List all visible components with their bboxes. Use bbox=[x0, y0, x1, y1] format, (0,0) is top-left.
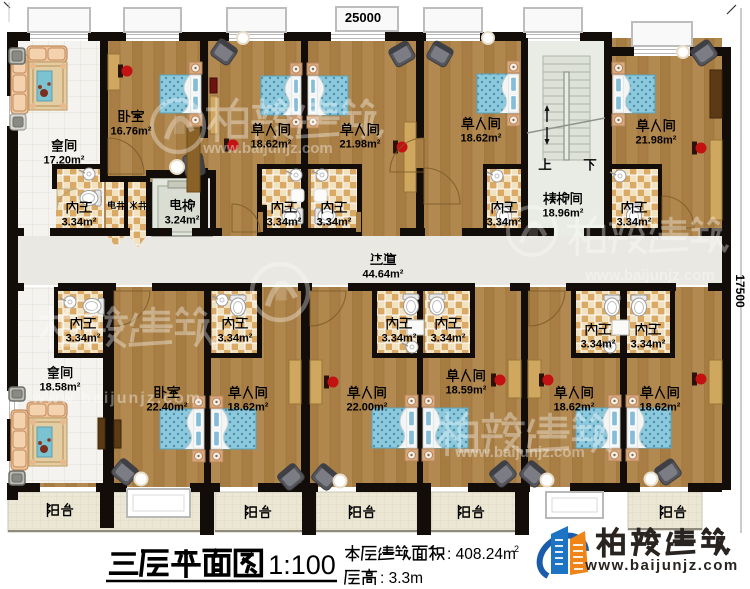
svg-text:18.59m²: 18.59m² bbox=[446, 385, 487, 397]
svg-text:22.00m²: 22.00m² bbox=[347, 402, 388, 414]
svg-text:18.58m²: 18.58m² bbox=[40, 382, 81, 394]
svg-text:www.baijunjz.com: www.baijunjz.com bbox=[584, 557, 738, 574]
svg-text:3.34m²: 3.34m² bbox=[487, 217, 522, 229]
svg-text:18.62m²: 18.62m² bbox=[461, 133, 502, 145]
svg-text:17.20m²: 17.20m² bbox=[44, 155, 85, 167]
svg-text:22.40m²: 22.40m² bbox=[147, 402, 188, 414]
svg-text:44.64m²: 44.64m² bbox=[363, 269, 404, 281]
svg-text:3.34m²: 3.34m² bbox=[317, 217, 352, 229]
svg-text:21.98m²: 21.98m² bbox=[340, 139, 381, 151]
svg-text:21.98m²: 21.98m² bbox=[636, 135, 677, 147]
svg-text:3.24m²: 3.24m² bbox=[165, 215, 200, 227]
svg-text:3.34m²: 3.34m² bbox=[66, 333, 101, 345]
svg-text:3.34m²: 3.34m² bbox=[631, 339, 666, 351]
svg-text:18.96m²: 18.96m² bbox=[543, 208, 584, 220]
svg-text:: 3.3m: : 3.3m bbox=[380, 570, 423, 587]
svg-text:3.34m²: 3.34m² bbox=[62, 217, 97, 229]
svg-text:www.baijunjz.com: www.baijunjz.com bbox=[584, 267, 714, 284]
svg-text:18.62m²: 18.62m² bbox=[640, 402, 681, 414]
svg-text:: 408.24m: : 408.24m bbox=[447, 546, 516, 563]
svg-text:3.34m²: 3.34m² bbox=[218, 333, 253, 345]
svg-text:16.76m²: 16.76m² bbox=[111, 126, 152, 138]
svg-text:3.34m²: 3.34m² bbox=[617, 217, 652, 229]
svg-text:3.34m²: 3.34m² bbox=[431, 333, 466, 345]
svg-text:3.34m²: 3.34m² bbox=[382, 333, 417, 345]
svg-text:18.62m²: 18.62m² bbox=[251, 139, 292, 151]
svg-text:3.34m²: 3.34m² bbox=[267, 217, 302, 229]
svg-text:18.62m²: 18.62m² bbox=[228, 402, 269, 414]
svg-text:www.baijunjz.com: www.baijunjz.com bbox=[454, 444, 584, 461]
svg-text:17500: 17500 bbox=[733, 274, 747, 308]
svg-text:18.62m²: 18.62m² bbox=[554, 402, 595, 414]
svg-text:3.34m²: 3.34m² bbox=[581, 339, 616, 351]
svg-text:2: 2 bbox=[514, 544, 519, 554]
svg-text:25000: 25000 bbox=[345, 10, 381, 25]
svg-text:1:100: 1:100 bbox=[268, 550, 336, 580]
